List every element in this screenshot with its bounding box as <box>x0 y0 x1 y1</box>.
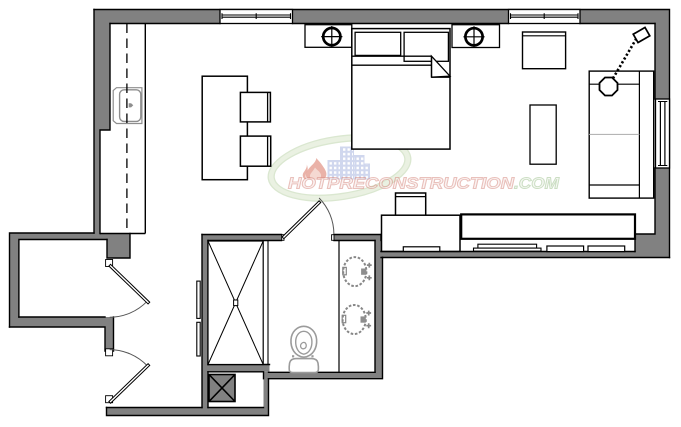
svg-text:.COM: .COM <box>514 176 560 193</box>
svg-text:HOTPRECONSTRUCTION: HOTPRECONSTRUCTION <box>288 176 515 193</box>
